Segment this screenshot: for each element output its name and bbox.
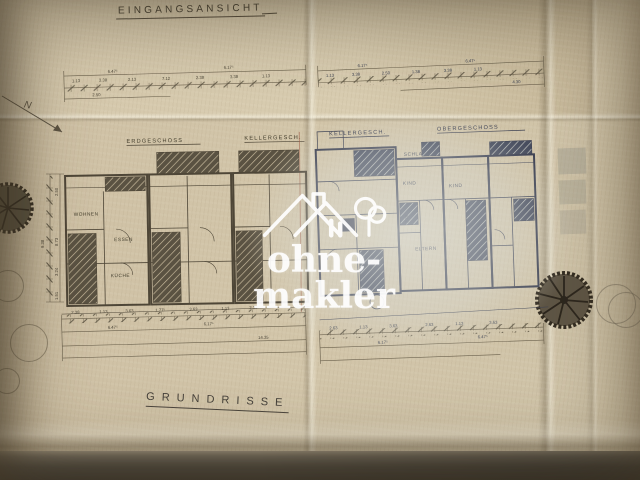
room-label-wohnen: WOHNEN [74, 211, 99, 217]
floorplan-drawing: 6.47⁵ 6.17⁵ 1.13 3.38 2.13 7.12 2.38 3.3… [0, 0, 640, 480]
roof-hatch [421, 142, 439, 157]
bottom-fold-shadow [0, 420, 640, 454]
door-swing-arc [327, 249, 337, 259]
dark-table-edge [0, 451, 640, 480]
dim-label: 2.76 [404, 214, 409, 223]
room-label-essen: ESSEN [114, 237, 133, 243]
dim-label: 6.47⁵ [108, 69, 118, 74]
door-swing-arc [447, 199, 457, 209]
terrace-hatch [105, 177, 145, 192]
dim-label: 3.38 [99, 77, 108, 82]
door-swing-arc [423, 200, 433, 210]
stair-hatch [68, 233, 97, 303]
room-label-eltern: ELTERN [415, 246, 437, 253]
dim-label: 1.77⁵ [155, 307, 165, 312]
floor-label-keller-left: KELLERGESCH. [244, 135, 301, 142]
dim-label: 2.13 [128, 77, 137, 82]
dim-label: 6.17⁵ [357, 63, 367, 68]
dim-label: 2.50 [92, 92, 101, 97]
terrace-hatch [157, 151, 219, 174]
dim-label: 1.13 [99, 309, 108, 314]
dim-label: 6.17⁵ [204, 321, 214, 326]
dim-label: 6.17⁵ [378, 339, 388, 344]
dimension-chain-top-left: 6.47⁵ 6.17⁵ 1.13 3.38 2.13 7.12 2.38 3.3… [64, 63, 307, 102]
hatched-room [354, 149, 395, 176]
dimension-chain-bottom-right: 2.63 1.13 3.63 2.63 1.13 3.63 6.17⁵ 6.47… [319, 318, 544, 364]
chimney-block [342, 219, 354, 231]
dim-label: 14.35 [258, 335, 269, 340]
dim-label: 1.13 [359, 324, 368, 329]
terrace-hatch [239, 150, 299, 173]
dim-label: 2.38 [196, 75, 205, 80]
dim-label: 2.50 [382, 70, 391, 75]
eg-unit-2 [149, 151, 234, 304]
dim-label: 1.13 [326, 73, 335, 78]
dim-label: 2.38 [249, 305, 258, 310]
door-swing-arc [200, 227, 214, 241]
dim-label: 3.63 [125, 308, 134, 313]
stair-hatch [359, 250, 384, 293]
erdgeschoss-plan: ERDGESCHOSS KELLERGESCH. WOHNEN ESSEN KÜ… [58, 132, 309, 316]
dim-label: 6.47⁵ [465, 58, 475, 63]
right-sheet-plans: KELLERGESCH. OBERGESCHOSS [313, 123, 548, 320]
dim-label: 3.24 [54, 267, 59, 276]
door-swing-arc [280, 226, 293, 239]
dim-label: 6.47⁵ [108, 325, 118, 330]
obergeschoss-plan: SCHLAFEN KIND ELTERN KI [395, 138, 538, 291]
bath-hatch [513, 198, 534, 221]
dim-label: 1.13 [221, 306, 230, 311]
dimension-chain-left-vertical: 2.50 9.38 8.73 3.24 1.51 [40, 174, 64, 302]
door-swing-arc [205, 261, 217, 273]
room-label-kueche: KÜCHE [111, 272, 130, 279]
room-label-kind-2: KIND [449, 183, 463, 189]
stair-hatch [466, 200, 488, 261]
dim-label: 1.38 [412, 69, 421, 74]
dim-label: 7.12 [162, 76, 171, 81]
photo-of-floorplan-sheet: N [0, 0, 640, 480]
dimension-chain-top-right: 6.17⁵ 6.47⁵ 1.13 3.38 2.50 1.38 3.38 1.1… [317, 55, 544, 97]
dim-label: 4.30 [512, 79, 521, 84]
dim-label: 6.47⁵ [478, 334, 488, 339]
dim-label: 2.38 [71, 310, 80, 315]
floor-label-erdgeschoss: ERDGESCHOSS [126, 138, 183, 145]
door-swing-arc [495, 229, 505, 239]
eg-unit-1: WOHNEN ESSEN KÜCHE [65, 175, 149, 306]
dim-label: 8.73 [54, 237, 59, 246]
kellergeschoss-plan [315, 129, 401, 311]
dim-label: 3.63 [189, 307, 198, 312]
dimension-chain-bottom-left: 2.38 1.13 3.63 1.77⁵ 3.63 1.13 2.38 6.47… [61, 304, 306, 361]
stair-hatch [236, 231, 263, 301]
room-label-kind-1: KIND [403, 180, 417, 186]
dim-label: 3.38 [444, 68, 453, 73]
dim-label: 3.38 [352, 72, 361, 77]
dim-label: 3.38 [230, 74, 239, 79]
dim-label: 3.63 [389, 323, 398, 328]
dim-label: 1.13 [455, 321, 464, 326]
dim-label: 6.17⁵ [224, 65, 234, 70]
dim-label: 9.38 [40, 239, 45, 248]
dim-label: 1.13 [72, 78, 81, 83]
dim-label: 2.63 [425, 322, 434, 327]
dim-label: 2.50 [54, 187, 59, 196]
dim-label: 1.13 [474, 66, 483, 71]
roof-hatch [489, 140, 531, 155]
dim-label: 1.51 [54, 291, 59, 300]
dim-label: 1.13 [262, 73, 271, 78]
stair-hatch [152, 232, 181, 302]
door-swing-arc [329, 181, 339, 191]
dim-label: 3.63 [489, 320, 498, 325]
eg-unit-3 [233, 150, 309, 303]
dim-label: 2.63 [329, 325, 338, 330]
well-circle-symbol [370, 295, 384, 309]
